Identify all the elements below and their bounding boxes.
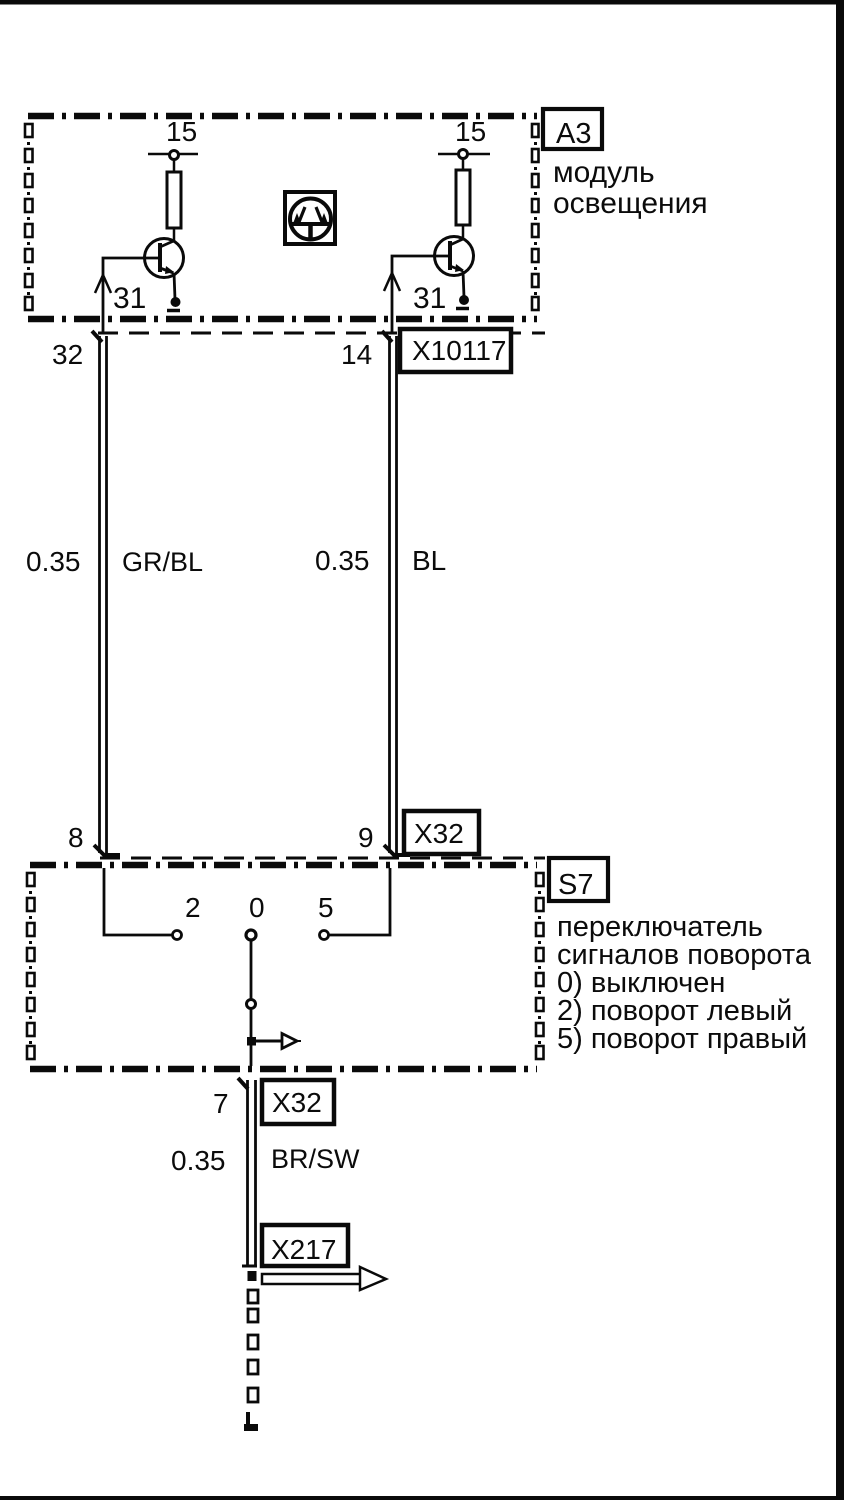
svg-text:2: 2 bbox=[185, 892, 201, 923]
svg-text:S7: S7 bbox=[558, 869, 593, 901]
svg-text:14: 14 bbox=[341, 339, 372, 370]
svg-text:9: 9 bbox=[358, 822, 374, 853]
svg-text:A3: A3 bbox=[556, 118, 591, 150]
svg-text:X32: X32 bbox=[272, 1087, 322, 1118]
svg-text:31: 31 bbox=[113, 282, 146, 315]
svg-text:0.35: 0.35 bbox=[171, 1145, 226, 1176]
svg-text:X10117: X10117 bbox=[412, 335, 506, 366]
svg-text:X217: X217 bbox=[271, 1234, 336, 1265]
svg-text:GR/BL: GR/BL bbox=[122, 547, 203, 577]
svg-text:BL: BL bbox=[412, 545, 446, 576]
svg-text:8: 8 bbox=[68, 822, 84, 853]
svg-text:5) поворот правый: 5) поворот правый bbox=[557, 1023, 807, 1055]
svg-text:X32: X32 bbox=[414, 818, 464, 849]
svg-text:модуль: модуль bbox=[553, 156, 655, 189]
svg-text:0.35: 0.35 bbox=[26, 546, 81, 577]
svg-text:15: 15 bbox=[166, 116, 197, 147]
svg-text:0: 0 bbox=[249, 892, 265, 923]
svg-text:0.35: 0.35 bbox=[315, 545, 370, 576]
svg-text:32: 32 bbox=[52, 339, 83, 370]
svg-text:освещения: освещения bbox=[553, 187, 708, 220]
svg-text:BR/SW: BR/SW bbox=[271, 1144, 360, 1174]
svg-text:7: 7 bbox=[213, 1088, 229, 1119]
svg-text:5: 5 bbox=[318, 892, 334, 923]
svg-text:15: 15 bbox=[455, 116, 486, 147]
svg-text:31: 31 bbox=[413, 282, 446, 315]
